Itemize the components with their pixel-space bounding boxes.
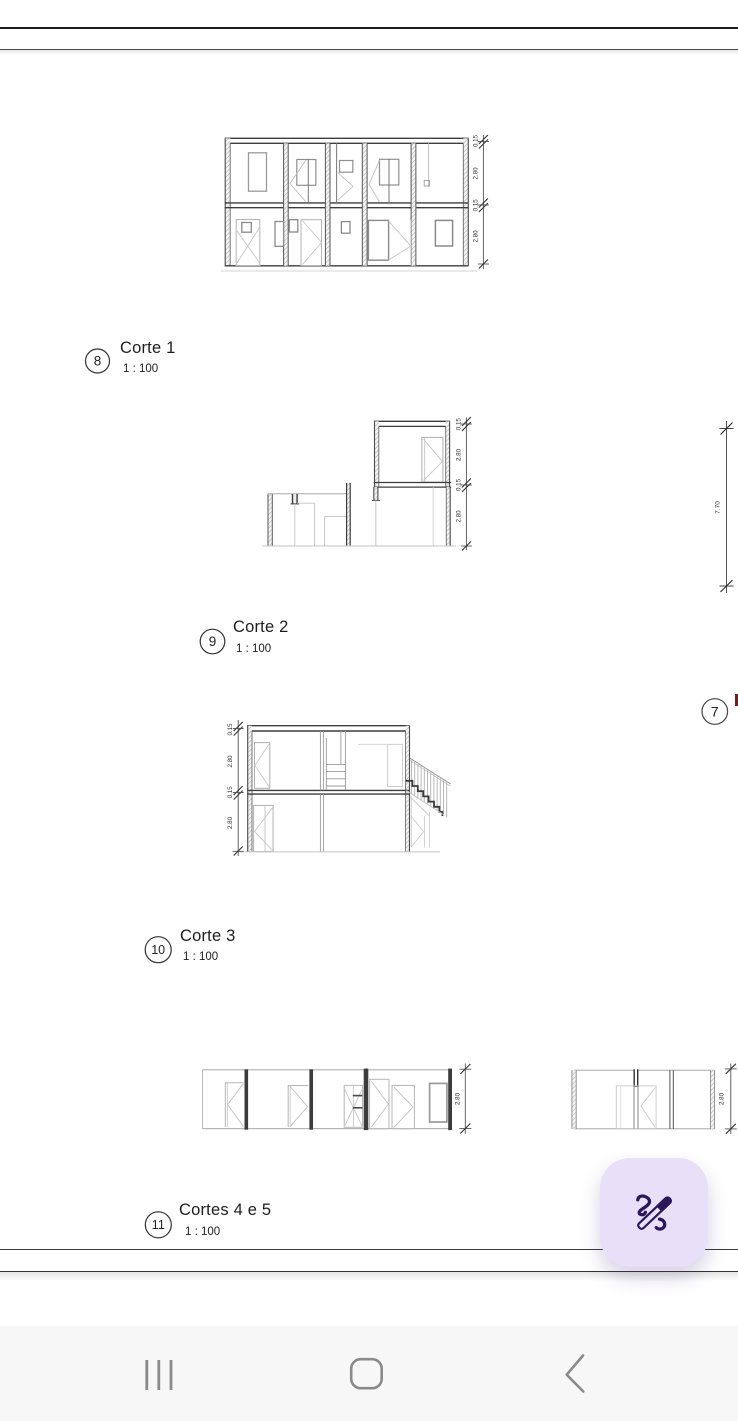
svg-text:2.80: 2.80 (472, 167, 479, 180)
svg-text:10: 10 (151, 943, 165, 957)
svg-text:0.15: 0.15 (227, 786, 234, 799)
svg-text:2.80: 2.80 (718, 1092, 725, 1105)
svg-text:2.80: 2.80 (227, 816, 234, 829)
svg-text:0.15: 0.15 (455, 418, 462, 431)
svg-text:2.80: 2.80 (472, 230, 479, 243)
svg-text:0.15: 0.15 (472, 134, 479, 147)
svg-text:7: 7 (711, 704, 719, 720)
svg-text:0.15: 0.15 (472, 199, 479, 212)
svg-text:7.70: 7.70 (715, 501, 722, 514)
svg-text:2.80: 2.80 (455, 448, 462, 461)
svg-text:2.80: 2.80 (227, 755, 234, 768)
svg-text:0.15: 0.15 (455, 478, 462, 491)
svg-text:2.80: 2.80 (455, 510, 462, 523)
svg-text:9: 9 (209, 634, 217, 649)
svg-text:0.15: 0.15 (227, 723, 234, 736)
svg-text:2.80: 2.80 (455, 1092, 462, 1105)
svg-text:11: 11 (152, 1218, 165, 1232)
svg-text:8: 8 (94, 354, 102, 369)
